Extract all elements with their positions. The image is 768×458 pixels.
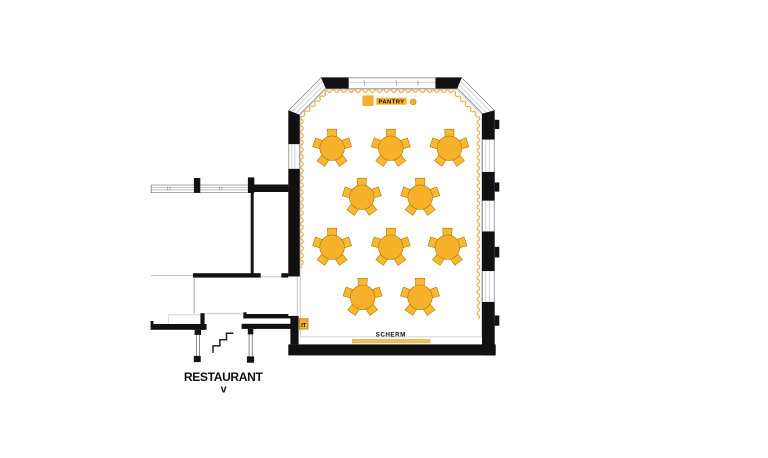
svg-text:SCHERM: SCHERM: [376, 332, 406, 339]
svg-text:v: v: [221, 383, 227, 395]
svg-text:PANTRY: PANTRY: [379, 99, 405, 105]
svg-text:RESTAURANT: RESTAURANT: [184, 370, 264, 384]
svg-text:IT: IT: [301, 323, 307, 329]
